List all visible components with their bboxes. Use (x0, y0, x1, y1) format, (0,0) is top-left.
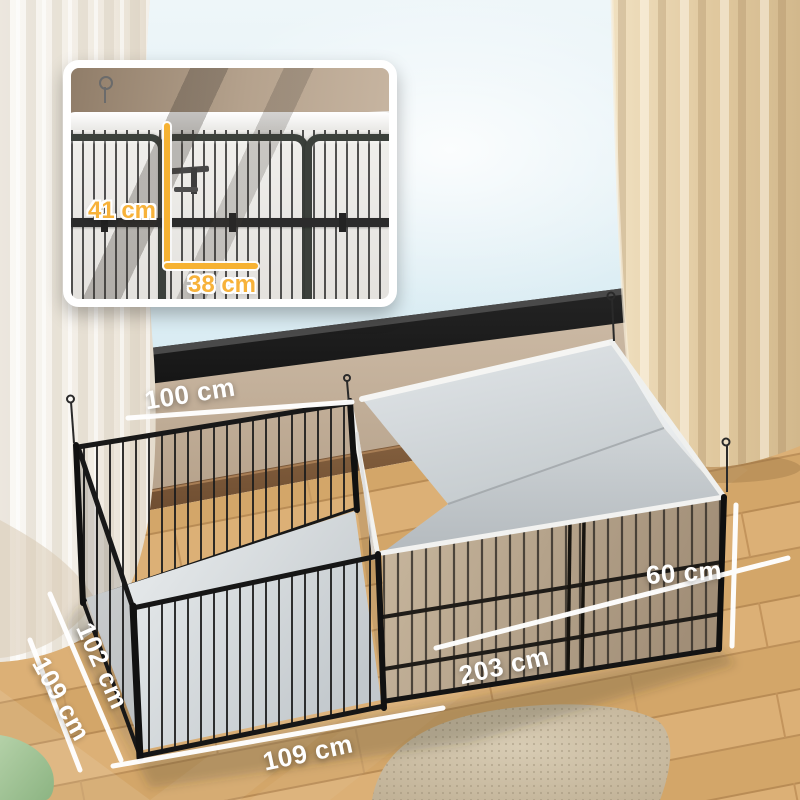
inset-dimension-label-door-height: 41 cm (88, 197, 156, 225)
detail-inset: 41 cm 38 cm (63, 60, 397, 307)
inset-dimension-label-door-width: 38 cm (188, 271, 256, 299)
room-scene: 41 cm 38 cm 100 cm 102 cm 109 cm 109 cm … (0, 0, 800, 800)
dimension-label-panel-height: 60 cm (645, 555, 723, 591)
inset-dimension-line-vertical (164, 123, 170, 269)
inset-dimension-line-horizontal (164, 263, 258, 269)
